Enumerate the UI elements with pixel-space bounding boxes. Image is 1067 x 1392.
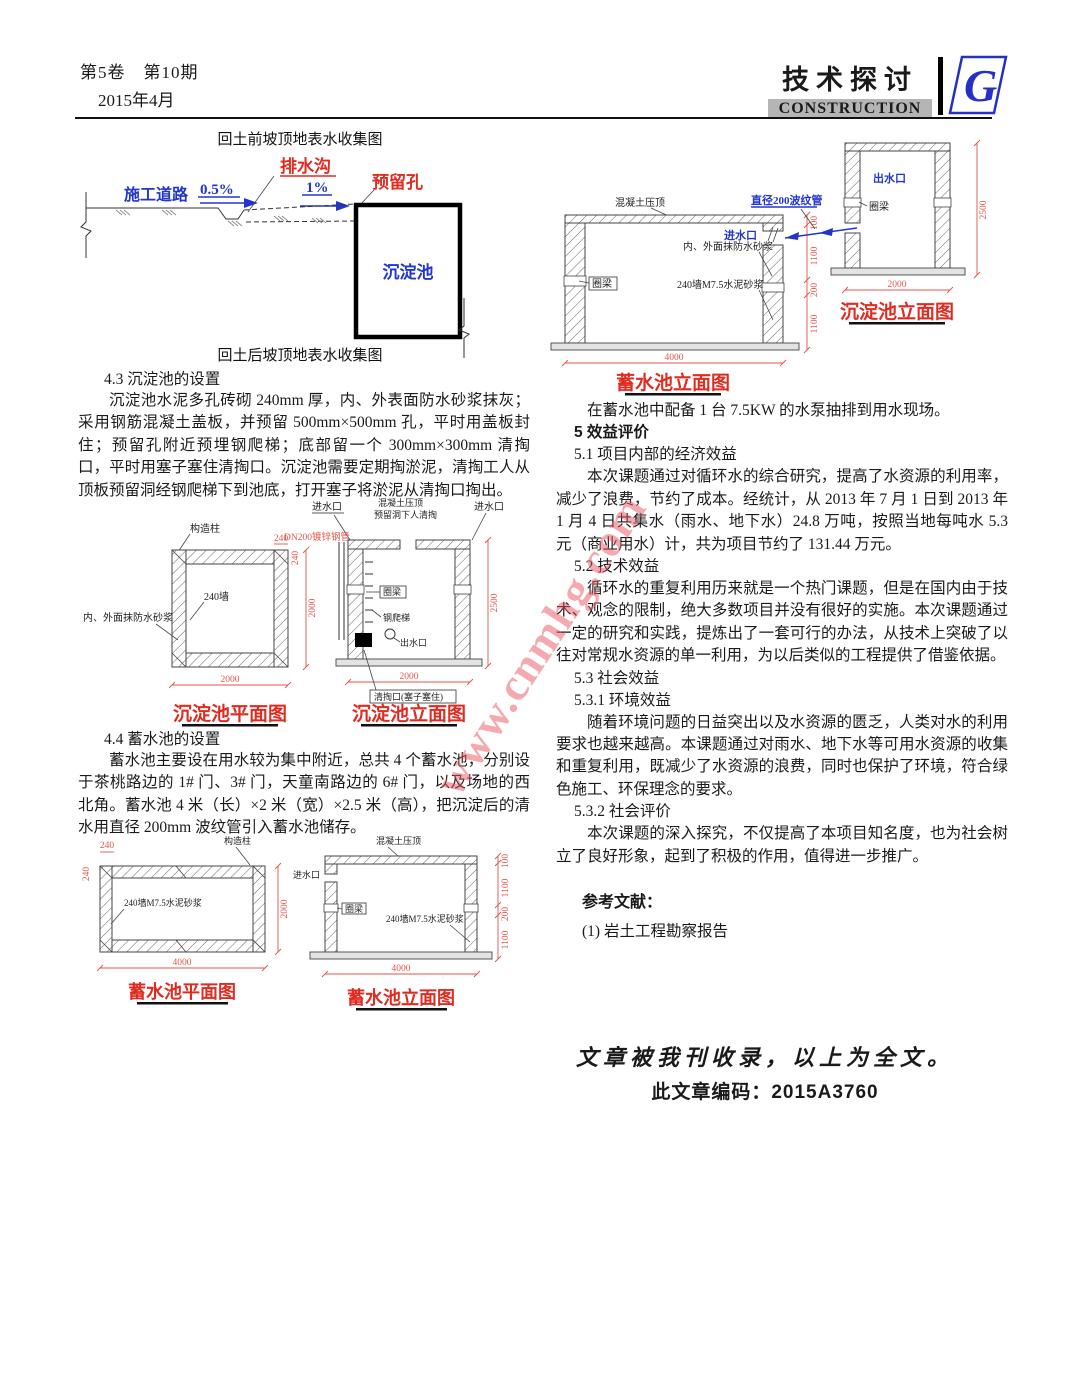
rplan-bottom-wall [100, 940, 265, 952]
heading-4-3: 4.3 沉淀池的设置 [78, 369, 556, 391]
label-sedimentation-tank: 沉淀池 [383, 262, 434, 282]
paragraph-pump: 在蓄水池中配备 1 台 7.5KW 的水泵抽排到用水现场。 [556, 400, 1008, 422]
caption-underline [182, 724, 278, 727]
ladder-leader [372, 610, 381, 617]
res-top-slab [565, 215, 783, 223]
label-outlet: 出水口 [873, 171, 906, 185]
figure-surface-water-collection: 回土前坡顶地表水收集图 排水沟 预留孔 施工道路 0.5% 1% 沉淀池 [78, 130, 530, 370]
corner-columns [172, 550, 288, 667]
elev-slab-right [416, 540, 470, 549]
elev-right-ringbeam [454, 585, 471, 594]
sed-right-wall [935, 151, 950, 268]
dim-rplan-height: 2000 [280, 899, 290, 918]
ground-line [86, 208, 244, 219]
dim-res-width: 4000 [665, 353, 684, 363]
journal-title: 技术探讨 [768, 58, 932, 97]
reference-item-1: (1) 岩土工程勘察报告 [556, 921, 1008, 943]
label-column: 构造柱 [190, 522, 220, 535]
heading-5-3-2: 5.3.2 社会评价 [556, 801, 1026, 823]
figure-sed-plan-elevation: 构造柱 240 240 240墙 内、外面抹防水砂浆 2000 2000 沉淀池… [78, 490, 533, 748]
label-construction-road: 施工道路 [124, 185, 189, 204]
paragraph-5-3-1: 随着环境问题的日益突出以及水资源的匮乏，人类对水的利用要求也越来越高。本课题通过… [556, 712, 1008, 802]
caption-sed-plan: 沉淀池平面图 [173, 702, 287, 725]
label-ring-beam: 圈梁 [592, 277, 612, 290]
references-heading: 参考文献： [556, 892, 1008, 914]
dim-relev-width: 4000 [392, 964, 411, 974]
res-column-leader [236, 847, 250, 865]
caption-underline [361, 724, 457, 727]
sed-base-slab [831, 268, 965, 275]
volume-issue: 第5卷 第10期 [80, 58, 199, 83]
label-relev-inlet: 进水口 [293, 869, 320, 880]
journal-masthead: 技术探讨 CONSTRUCTION [768, 58, 932, 119]
caption-sed-elev2: 沉淀池立面图 [352, 702, 466, 725]
label-inlet: 进水口 [724, 228, 757, 242]
heading-5-3-1: 5.3.1 环境效益 [556, 690, 1026, 712]
label-plaster: 内、外面抹防水砂浆 [683, 240, 773, 253]
label-elev-ring: 圈梁 [383, 586, 401, 597]
rplan-wall-leader [111, 909, 124, 924]
paragraph-5-3-2: 本次课题的深入探究，不仅提高了本项目知名度，也为社会树立了良好形象，起到了积极的… [556, 823, 1008, 868]
left-break-line [81, 192, 91, 258]
journal-page: 第5卷 第10期 2015年4月 技术探讨 CONSTRUCTION G 回土前… [0, 0, 1067, 1392]
relev-coping-leader [388, 847, 398, 856]
logo-letter-g: G [964, 60, 997, 111]
dim-rv-200: 200 [501, 907, 511, 922]
label-sed-ring-beam: 圈梁 [869, 200, 889, 213]
label-wall-spec: 240墙M7.5水泥砂浆 [677, 278, 763, 291]
paragraph-5-2: 循环水的重复利用历来就是一个热门课题，但是在国内由于技术、观念的限制，绝大多数项… [556, 578, 1008, 668]
label-reserved-hole: 预留孔 [372, 172, 423, 192]
plan-left-wall [172, 550, 186, 667]
caption-after-backfill: 回土后坡顶地表水收集图 [217, 347, 382, 364]
paragraph-5-1: 本次课题通过对循环水的综合研究，提高了水资源的利用率，减少了浪费，节约了成本。经… [556, 466, 1008, 556]
dim-rv-1100a: 1100 [501, 878, 511, 897]
res-right-ringbeam [762, 283, 784, 292]
outlet-circle [385, 629, 395, 639]
wall-leader [190, 602, 204, 620]
label-res-column: 构造柱 [224, 835, 251, 846]
label-relev-ring: 圈梁 [345, 903, 363, 914]
caption-res-elevation: 蓄水池立面图 [616, 371, 730, 394]
footer-article-code: 此文章编码：2015A3760 [495, 1077, 1035, 1104]
dim-elev-width: 2000 [400, 672, 419, 682]
dim-rplan-width: 4000 [173, 958, 192, 968]
heading-5-2: 5.2 技术效益 [556, 556, 1026, 578]
dim-240-top: 240 [100, 841, 115, 851]
caption-underline [356, 1008, 447, 1011]
dim-sed-height: 2500 [979, 200, 989, 219]
dim-v-200: 200 [810, 283, 820, 298]
label-relev-wall: 240墙M7.5水泥砂浆 [386, 913, 464, 924]
caption-before-backfill: 回土前坡顶地表水收集图 [217, 131, 382, 148]
label-coping: 混凝土压顶 [615, 196, 665, 209]
header-rule [75, 117, 992, 119]
caption-underline [137, 1002, 228, 1005]
heading-5-3: 5.3 社会效益 [556, 668, 1026, 690]
dim-v-1100a: 1100 [810, 246, 820, 265]
caption-underline [625, 393, 721, 396]
label-galv-pipe: DN200镀锌钢管 [284, 531, 350, 543]
elev-right-wall [455, 549, 470, 659]
rplan-right-wall [253, 866, 265, 952]
plan-right-wall [274, 550, 288, 667]
label-inlet-right: 进水口 [474, 501, 504, 513]
figure-res-plan-elevation: 240 240 构造柱 240墙M7.5水泥砂浆 2000 4000 蓄水池平面… [78, 832, 538, 1022]
caption-res-elev2: 蓄水池立面图 [347, 987, 455, 1008]
column-leader [178, 534, 190, 552]
elev-base-slab [336, 659, 482, 666]
cleanout-leader [364, 650, 376, 690]
label-relev-coping: 混凝土压顶 [376, 835, 421, 846]
right-column: 在蓄水池中配备 1 台 7.5KW 的水泵抽排到用水现场。 5 效益评价 5.1… [556, 400, 1008, 943]
label-cleanout: 清掏口(塞子塞住) [374, 691, 443, 702]
dim-v-100: 100 [810, 216, 820, 231]
label-corrugated-pipe: 直径200波纹管 [751, 193, 823, 207]
sed-left-wall-lower [845, 233, 860, 268]
rplan-columns [100, 866, 265, 952]
relev-left-ringbeam [324, 904, 338, 912]
paragraph-4-4: 蓄水池主要设在用水较为集中附近，总共 4 个蓄水池，分别设于茶桃路边的 1# 门… [78, 750, 530, 840]
relev-base-slab [310, 952, 492, 959]
dim-elev-height: 2500 [490, 593, 500, 612]
journal-subtitle: CONSTRUCTION [768, 99, 932, 119]
label-slope-05: 0.5% [200, 182, 234, 198]
label-drain-ditch: 排水沟 [280, 156, 331, 176]
res-base-slab [551, 343, 799, 350]
dim-rv-1100b: 1100 [501, 930, 511, 949]
cleanout-plug [355, 633, 372, 647]
relev-left-wall-stub [325, 864, 337, 874]
dim-240-left: 240 [82, 867, 92, 882]
label-ladder: 钢爬梯 [383, 612, 410, 623]
relev-right-ringbeam [464, 904, 478, 912]
elev-slab-left [348, 540, 400, 549]
figure-elevations-top-right: 混凝土压顶 圈梁 进水口 内、外面抹防水砂浆 240墙M7.5水泥砂浆 4000… [545, 128, 1007, 400]
heading-4-4: 4.4 蓄水池的设置 [78, 729, 556, 751]
dim-v-1100b: 1100 [810, 314, 820, 333]
caption-sed-elevation: 沉淀池立面图 [840, 300, 954, 323]
label-plan-plaster: 内、外面抹防水砂浆 [83, 611, 173, 624]
sed-top-slab [845, 143, 950, 151]
masthead-divider [938, 57, 943, 115]
sed-left-wall-upper [845, 151, 860, 223]
caption-res-plan: 蓄水池平面图 [128, 981, 236, 1002]
label-slope-1: 1% [306, 180, 329, 196]
issue-date: 2015年4月 [80, 86, 199, 111]
heading-5-1: 5.1 项目内部的经济效益 [556, 444, 1026, 466]
pipe-arrowhead-icon [785, 232, 799, 240]
slope-05-arrowhead-icon [244, 198, 258, 208]
plan-bottom-wall [172, 653, 288, 667]
dim-240-side: 240 [291, 551, 301, 566]
rplan-top-wall [100, 866, 265, 878]
footer-note: 文章被我刊收录，以上为全文。 此文章编码：2015A3760 [495, 1040, 1035, 1104]
journal-logo: G [946, 52, 1010, 118]
rplan-left-wall [100, 866, 112, 952]
label-elev-coping: 混凝土压顶 [378, 497, 423, 508]
dashed-grade-lower [246, 221, 356, 222]
inlet-r-leader [472, 513, 486, 540]
sed-left-ringbeam [844, 198, 861, 207]
footer-line-collected: 文章被我刊收录，以上为全文。 [495, 1040, 1035, 1072]
drain-leader [248, 176, 274, 212]
issue-info: 第5卷 第10期 2015年4月 [80, 58, 199, 111]
label-rplan-wall: 240墙M7.5水泥砂浆 [124, 897, 202, 908]
sed-right-ringbeam [934, 198, 951, 207]
label-inlet-left: 进水口 [312, 501, 342, 513]
plan-top-wall [172, 550, 288, 564]
paragraph-4-3: 沉淀池水泥多孔砖砌 240mm 厚，内、外表面防水砂浆抹灰；采用钢筋混凝土盖板，… [78, 390, 530, 502]
elev-left-ringbeam [347, 585, 364, 594]
dim-plan-width: 2000 [221, 675, 240, 685]
caption-underline [849, 322, 945, 325]
slope-1-arrowhead-icon [336, 201, 350, 211]
dim-sed-width: 2000 [888, 280, 907, 290]
relev-top-slab [325, 856, 477, 864]
pipe-arrowhead2-icon [819, 228, 833, 236]
label-wall-240: 240墙 [204, 590, 229, 603]
res-right-wall [763, 245, 783, 343]
relev-left-wall [325, 882, 337, 952]
label-elev-outlet: 出水口 [400, 637, 427, 648]
label-reserved-opening: 预留洞下人清掏 [374, 509, 437, 520]
heading-5: 5 效益评价 [556, 422, 1026, 444]
dim-plan-height: 2000 [308, 598, 318, 617]
dim-rv-100: 100 [501, 854, 511, 869]
res-left-ringbeam [564, 276, 586, 286]
